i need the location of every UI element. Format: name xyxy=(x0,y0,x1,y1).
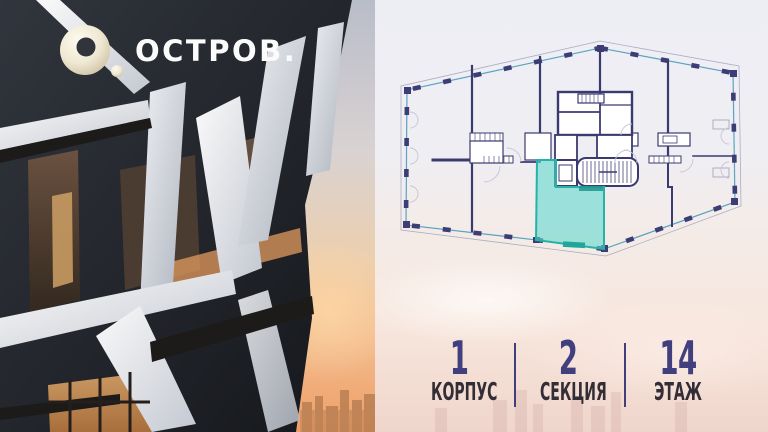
stat-value: 1 xyxy=(429,337,489,379)
apartment-card: ОСТРОВ. xyxy=(0,0,768,432)
logo-text: ОСТРОВ. xyxy=(135,34,297,68)
lit-window xyxy=(52,192,73,288)
stat-divider xyxy=(624,343,626,407)
stat-divider xyxy=(514,343,516,407)
building-photo-section: ОСТРОВ. xyxy=(0,0,375,432)
floor-plan[interactable] xyxy=(375,0,768,300)
stats-bar: 1 КОРПУС 2 СЕКЦИЯ 14 ЭТАЖ xyxy=(375,337,768,419)
unit-window-marker xyxy=(563,241,585,248)
stat-label: ЭТАЖ xyxy=(650,380,706,404)
stat-value: 2 xyxy=(538,337,598,379)
logo-icon-dot xyxy=(111,65,123,77)
unit-area-tag xyxy=(579,186,603,191)
stat-sektsiya: 2 СЕКЦИЯ xyxy=(518,337,618,404)
stat-etazh: 14 ЭТАЖ xyxy=(628,337,728,404)
details-panel: 1 КОРПУС 2 СЕКЦИЯ 14 ЭТАЖ xyxy=(375,0,768,432)
stair-icon xyxy=(577,158,638,186)
stat-label: СЕКЦИЯ xyxy=(540,380,596,404)
stat-korpus: 1 КОРПУС xyxy=(409,337,509,404)
building-photo: ОСТРОВ. xyxy=(0,0,375,432)
stat-label: КОРПУС xyxy=(431,380,487,404)
stat-value: 14 xyxy=(648,337,708,379)
logo-icon-hole xyxy=(77,38,96,57)
